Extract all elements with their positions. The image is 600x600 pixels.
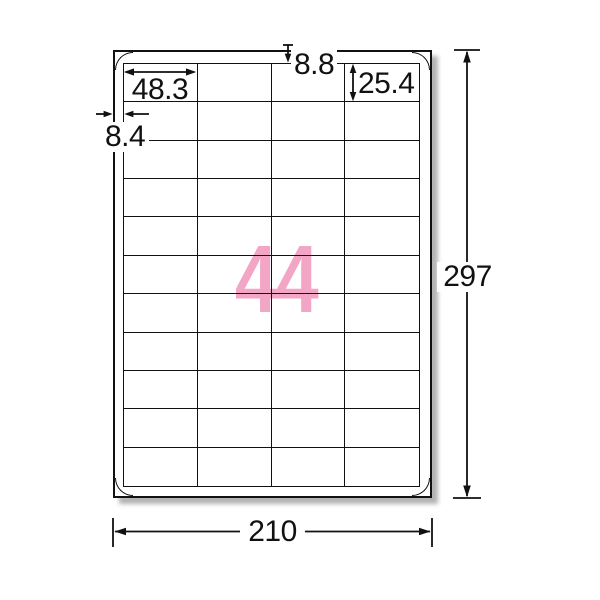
label-cell (345, 256, 419, 294)
label-cell (272, 179, 346, 217)
label-cell (124, 333, 198, 371)
label-cell (345, 448, 419, 486)
label-cell (345, 371, 419, 409)
label-cell (272, 141, 346, 179)
label-cell (198, 217, 272, 255)
label-cell (272, 448, 346, 486)
label-cell (272, 371, 346, 409)
label-cell (345, 333, 419, 371)
label-cell (198, 333, 272, 371)
label-cell (124, 371, 198, 409)
label-cell (272, 409, 346, 447)
label-cell (198, 409, 272, 447)
label-cell (198, 64, 272, 102)
label-cell (198, 448, 272, 486)
label-cell (198, 141, 272, 179)
label-cell (198, 294, 272, 332)
label-cell (345, 409, 419, 447)
label-cell (272, 294, 346, 332)
label-cell (345, 141, 419, 179)
label-cell (345, 294, 419, 332)
label-cell (345, 217, 419, 255)
label-cell (124, 217, 198, 255)
label-cell (272, 217, 346, 255)
label-cell (124, 294, 198, 332)
label-cell (272, 333, 346, 371)
label-cell (198, 256, 272, 294)
label-cell (198, 371, 272, 409)
label-cell (198, 102, 272, 140)
dim-paper-height-value: 297 (437, 262, 498, 292)
dim-label-height-value: 25.4 (358, 69, 414, 99)
label-cell (124, 448, 198, 486)
label-sheet-diagram: 44 (0, 0, 600, 600)
dim-side-margin-value: 8.4 (101, 122, 149, 152)
label-cell (272, 256, 346, 294)
dim-paper-width-value: 210 (240, 517, 305, 547)
label-cell (345, 179, 419, 217)
label-cell (345, 102, 419, 140)
label-cell (124, 409, 198, 447)
label-cell (198, 179, 272, 217)
dim-top-margin-value: 8.8 (291, 50, 337, 80)
label-cell (124, 179, 198, 217)
label-cell (124, 256, 198, 294)
label-cell (272, 102, 346, 140)
dim-label-width-value: 48.3 (123, 75, 197, 105)
label-grid (123, 63, 420, 487)
